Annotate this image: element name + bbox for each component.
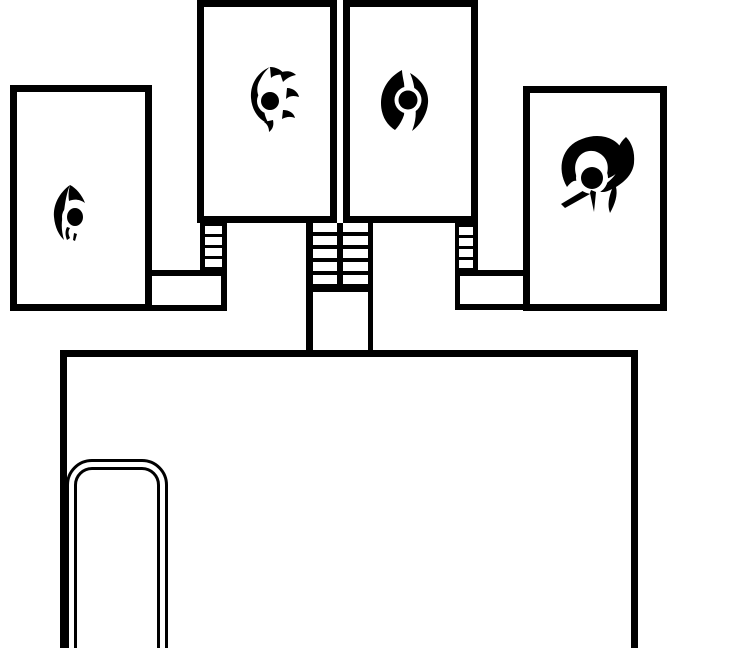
center-east-stairs [343,223,368,286]
rounded-alcove-inner [74,467,160,648]
pinwheel-sigil-icon [246,64,300,132]
west-corridor [150,270,227,311]
dungeon-map [0,0,754,648]
center-west-stairs [313,223,337,286]
horn-swirl-sigil-icon [555,130,655,230]
east-corridor [455,270,531,310]
flame-sigil-icon [48,183,94,241]
east-stairs-treads [459,227,473,268]
west-stairs-treads [205,226,222,268]
twin-crescent-sigil-icon [379,69,433,132]
